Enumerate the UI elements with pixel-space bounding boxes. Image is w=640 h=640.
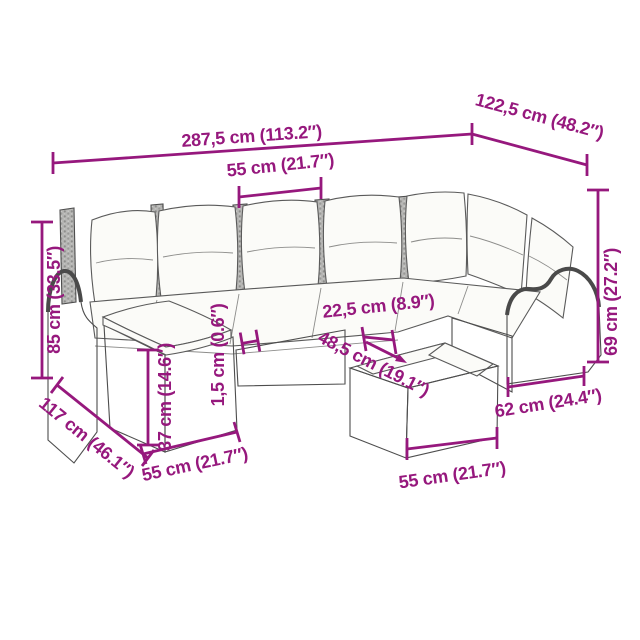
dim-right-depth: 122,5 cm (48.2″) — [472, 89, 606, 176]
dim-footstool-height: 37 cm (14.6″) — [137, 343, 175, 451]
dim-arm-height-label: 69 cm (27.2″) — [601, 248, 621, 356]
dim-seat-width-label: 55 cm (21.7″) — [226, 149, 336, 180]
dim-back-height: 85 cm (33.5″) — [31, 222, 64, 378]
dim-table-width-label: 55 cm (21.7″) — [397, 458, 507, 493]
dim-right-depth-label: 122,5 cm (48.2″) — [473, 89, 606, 143]
product-dimension-diagram: 287,5 cm (113.2″) 122,5 cm (48.2″) 55 cm… — [0, 0, 640, 640]
dim-arm-depth: 62 cm (24.4″) — [493, 366, 603, 421]
dim-back-height-label: 85 cm (33.5″) — [44, 246, 64, 354]
dim-table-width: 55 cm (21.7″) — [397, 427, 507, 492]
glass-panel-right — [429, 343, 493, 376]
dim-arm-height: 69 cm (27.2″) — [587, 190, 621, 362]
diagram-canvas: 287,5 cm (113.2″) 122,5 cm (48.2″) 55 cm… — [0, 0, 640, 640]
dim-left-depth: 117 cm (46.1″) — [35, 377, 154, 482]
dim-footstool-height-label: 37 cm (14.6″) — [155, 343, 175, 451]
dim-glass-thickness-label: 1,5 cm (0.6″) — [208, 303, 228, 406]
